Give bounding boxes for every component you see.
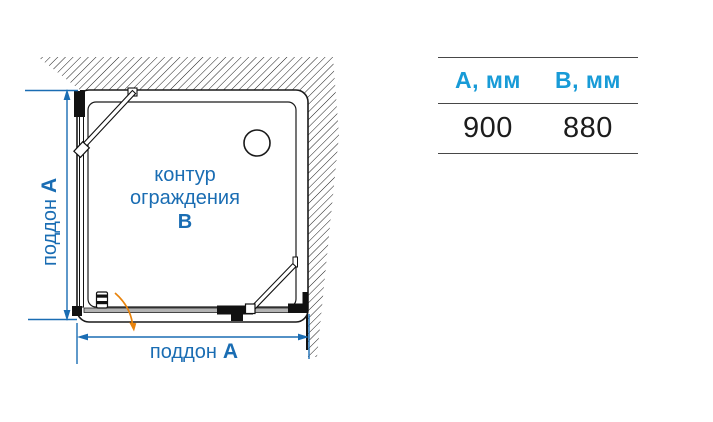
- dimensions-table: A, мм B, мм 900 880: [438, 57, 638, 154]
- corner-connector: [72, 306, 82, 316]
- side-dimension-label: поддонA: [38, 178, 61, 266]
- value-b: 880: [538, 112, 638, 145]
- door-connector: [246, 304, 256, 314]
- bottom-dimension-label: поддонA: [150, 340, 238, 363]
- wall-profile-right: [303, 292, 309, 309]
- dimensions-table-header-row: A, мм B, мм: [438, 58, 638, 104]
- arrowhead-left-icon: [77, 334, 88, 341]
- wall-profile-left: [74, 91, 85, 117]
- column-header-b: B, мм: [538, 67, 638, 94]
- door-knob: [97, 292, 108, 308]
- dimensions-table-value-row: 900 880: [438, 104, 638, 153]
- contour-label-line2: ограждения: [130, 187, 240, 209]
- shower-enclosure-spec-page: поддонA контур ограждения B поддонA A, м…: [0, 0, 713, 422]
- contour-label-line1: контур: [154, 164, 215, 186]
- column-header-a: A, мм: [438, 67, 538, 94]
- value-a: 900: [438, 112, 538, 145]
- shower-layout-diagram: поддонA контур ограждения B поддонA: [0, 0, 430, 422]
- drain-icon: [244, 130, 270, 156]
- contour-label-dim: B: [178, 211, 192, 233]
